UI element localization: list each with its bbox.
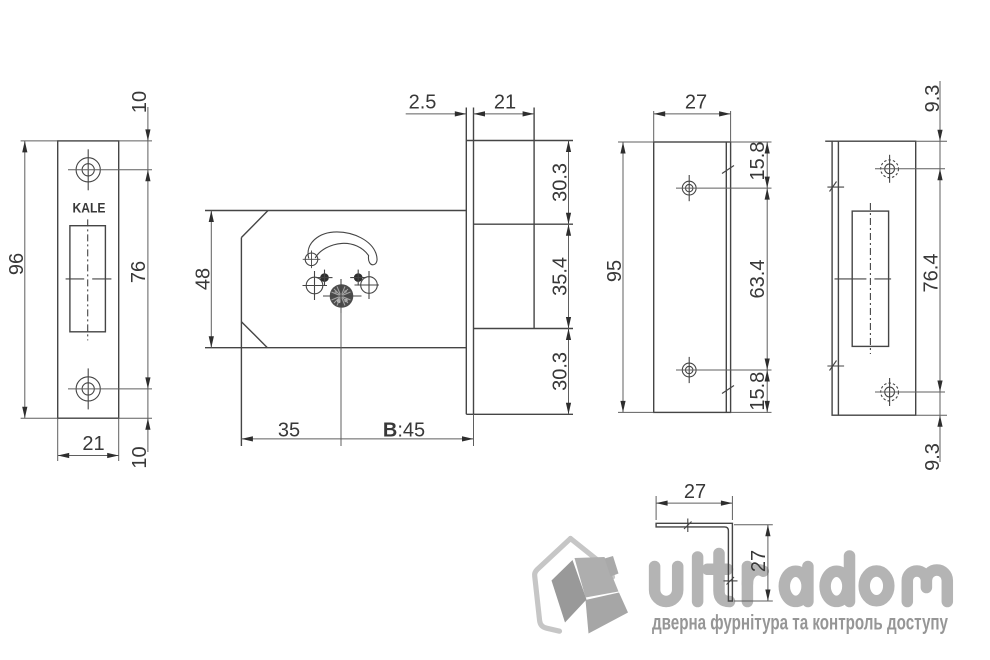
- svg-text:63.4: 63.4: [747, 260, 769, 299]
- svg-text:76: 76: [128, 261, 150, 283]
- svg-text:27: 27: [748, 550, 770, 572]
- svg-text:27: 27: [685, 92, 707, 114]
- svg-text:9.3: 9.3: [922, 443, 944, 471]
- svg-text:95: 95: [604, 260, 626, 282]
- svg-text:дверна фурнітура та контроль д: дверна фурнітура та контроль доступу: [652, 611, 948, 635]
- svg-text:21: 21: [82, 433, 104, 455]
- svg-text:30.3: 30.3: [550, 352, 572, 391]
- svg-text:35.4: 35.4: [550, 257, 572, 296]
- svg-text:2.5: 2.5: [409, 92, 437, 114]
- svg-text:KALE: KALE: [73, 201, 106, 216]
- svg-text:76.4: 76.4: [921, 254, 943, 293]
- svg-text:30.3: 30.3: [550, 163, 572, 202]
- svg-text:21: 21: [494, 92, 516, 114]
- svg-text:10: 10: [129, 91, 151, 113]
- svg-text:35: 35: [278, 420, 300, 442]
- svg-text:48: 48: [192, 268, 214, 290]
- svg-text:10: 10: [129, 446, 151, 468]
- svg-text:15.8: 15.8: [747, 142, 769, 181]
- svg-text:96: 96: [6, 253, 28, 275]
- svg-text:B:45: B:45: [383, 420, 425, 442]
- svg-text:27: 27: [684, 481, 706, 503]
- svg-text:9.3: 9.3: [922, 85, 944, 113]
- svg-text:15.8: 15.8: [747, 372, 769, 411]
